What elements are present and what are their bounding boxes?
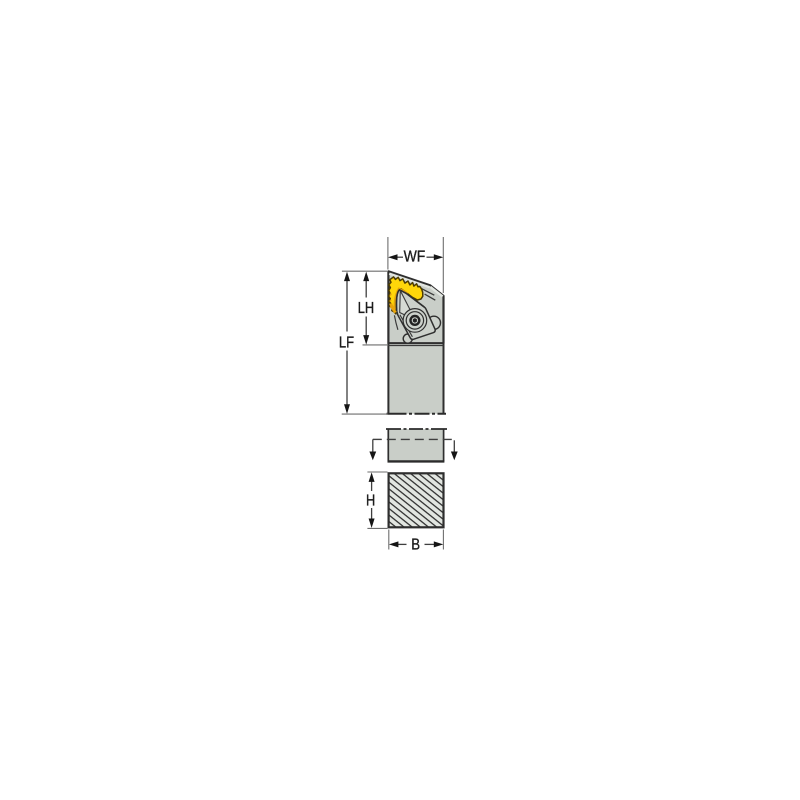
svg-text:WF: WF [404,248,426,265]
svg-text:B: B [411,536,420,553]
svg-text:H: H [366,492,375,509]
svg-text:LH: LH [358,300,374,317]
svg-text:LF: LF [339,334,354,351]
